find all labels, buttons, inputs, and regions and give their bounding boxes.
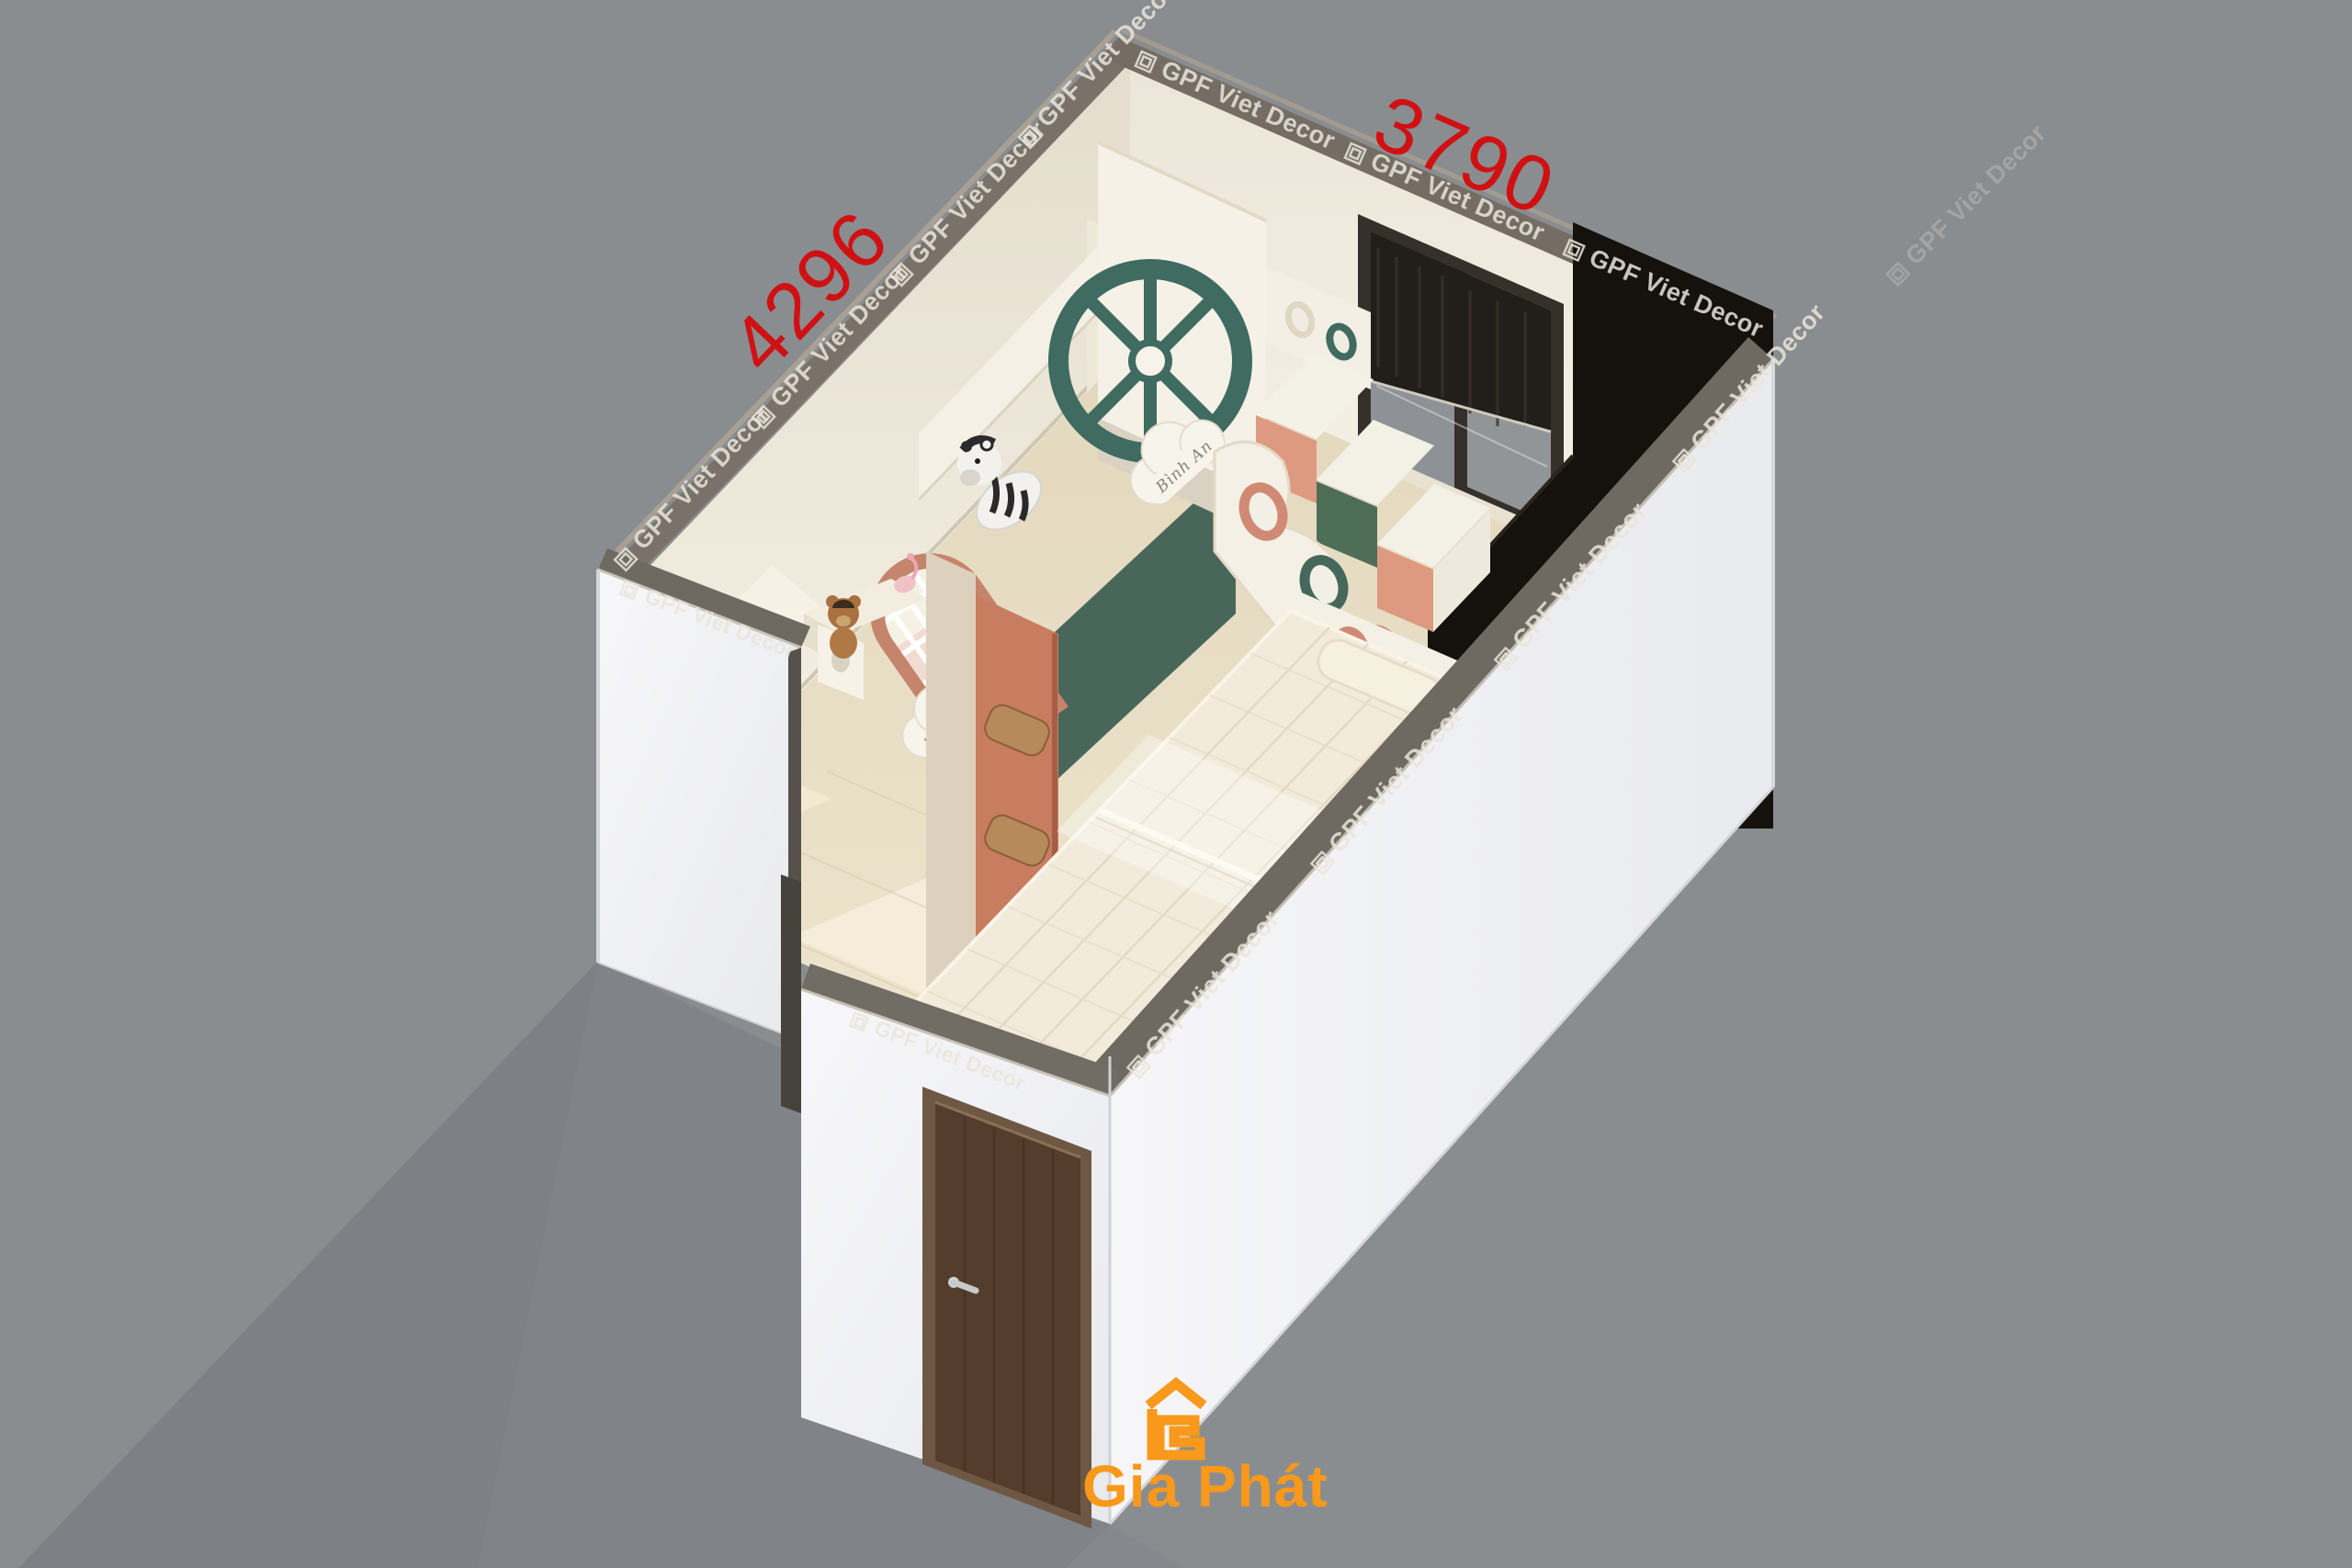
wall-step-reveal (781, 874, 801, 1113)
door-leaf (935, 1102, 1080, 1516)
room-render: Bình An (0, 0, 2352, 1568)
door (922, 1087, 1091, 1529)
render-canvas: Bình An (0, 0, 2352, 1568)
brand-logo-text: Gia Phát (1082, 1453, 1329, 1519)
nook-shadow-panel (926, 551, 976, 1010)
